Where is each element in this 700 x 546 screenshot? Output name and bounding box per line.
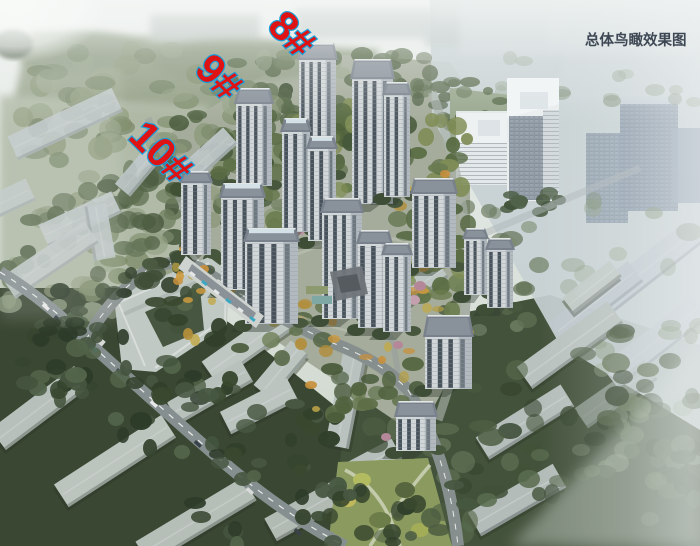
svg-text:总体鸟瞰效果图: 总体鸟瞰效果图 (585, 31, 687, 49)
